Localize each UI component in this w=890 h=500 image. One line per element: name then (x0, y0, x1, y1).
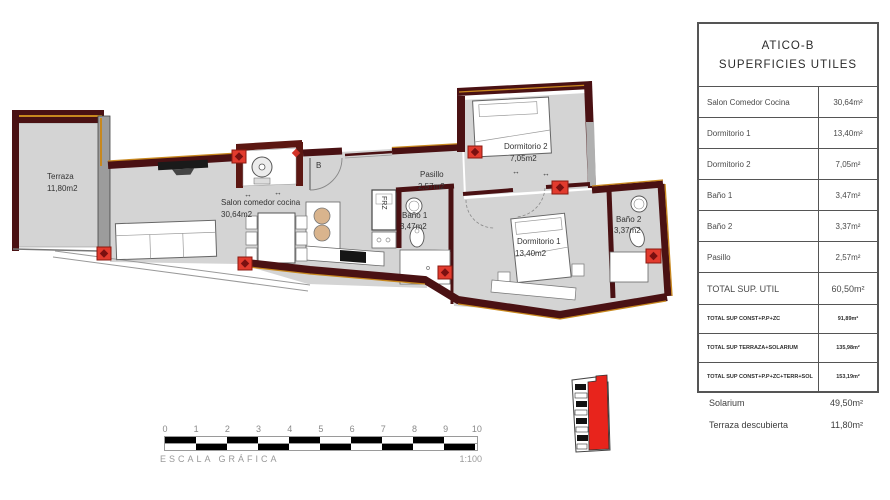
pasillo-name: Pasillo (420, 170, 444, 179)
salon-area: 30,64m2 (221, 210, 253, 219)
fridge-label: FRZ (380, 196, 387, 210)
pillar-icon (238, 257, 252, 270)
pillar-icon (438, 266, 452, 279)
table-title: SUPERFICIES UTILES (719, 59, 857, 71)
slider-arrow-icon: ↔ (274, 188, 282, 197)
unit-title: ATICO-B (762, 40, 815, 52)
table-row: Pasillo2,57m² (699, 241, 877, 272)
terrace-sliding-door (98, 116, 110, 256)
dormitorio1-area: 13,40m2 (515, 249, 547, 258)
pillar-icon (468, 146, 482, 158)
fridge: FRZ (372, 190, 396, 248)
table-row-total: TOTAL SUP. UTIL60,50m² (699, 272, 877, 304)
table-row: Salon Comedor Cocina30,64m² (699, 86, 877, 117)
table-row: Dormitorio 113,40m² (699, 117, 877, 148)
table-header: ATICO-B SUPERFICIES UTILES (699, 24, 877, 86)
bano1-area: 3,47m2 (400, 222, 427, 231)
closet-arrow-icon: ↔ (542, 169, 550, 178)
sofa (115, 220, 216, 259)
pillar-icon (646, 249, 661, 263)
pasillo-area: 2,57m2 (418, 182, 445, 191)
table-row: Dormitorio 27,05m² (699, 148, 877, 179)
table-row-terraza-solarium: TOTAL SUP TERRAZA+SOLARIUM135,98m² (699, 333, 877, 362)
floor-plan: ↔ ↔ B ↔ ↔ (0, 0, 690, 350)
pillar-icon (552, 181, 568, 194)
bano2-name: Baño 2 (616, 215, 642, 224)
dormitorio2-name: Dormitorio 2 (504, 142, 548, 151)
closet-arrow-icon: ↔ (512, 167, 520, 176)
unit-highlight (588, 375, 609, 450)
floor-areas (16, 93, 668, 313)
scale-ticks: 01 23 45 67 89 10 (160, 424, 482, 434)
terraza-name: Terraza (47, 172, 74, 181)
dormitorio1-bed (511, 213, 571, 282)
table-row: Baño 13,47m² (699, 179, 877, 210)
floorplan-sheet: ↔ ↔ B ↔ ↔ (0, 0, 890, 500)
scale-bar-segments (164, 436, 478, 451)
bano2-area: 3,37m2 (614, 226, 641, 235)
surfaces-table: ATICO-B SUPERFICIES UTILES Salon Comedor… (697, 22, 879, 393)
door-b-label: B (316, 161, 321, 170)
terraza-area: 11,80m2 (47, 184, 78, 193)
table-row-const: TOTAL SUP CONST+P.P+ZC91,89m² (699, 304, 877, 333)
key-plan (566, 372, 616, 456)
salon-name: Salon comedor cocina (221, 198, 301, 207)
scale-bar: 01 23 45 67 89 10 ESCALA GRÁFICA 1:100 (160, 424, 482, 464)
solarium-row: Solarium 49,50m² (697, 398, 875, 408)
table-row: Baño 23,37m² (699, 210, 877, 241)
pillar-icon (97, 247, 111, 260)
dormitorio1-name: Dormitorio 1 (517, 237, 561, 246)
terraza-descubierta-row: Terraza descubierta 11,80m² (697, 420, 875, 430)
bano1-name: Baño 1 (402, 211, 428, 220)
table-row-grand-total: TOTAL SUP CONST+P.P+ZC+TERR+SOL153,19m² (699, 362, 877, 391)
scale-caption: ESCALA GRÁFICA (160, 454, 280, 464)
dormitorio2-area: 7,05m2 (510, 154, 537, 163)
scale-ratio: 1:100 (459, 454, 482, 464)
dining-table (246, 213, 307, 263)
pillar-icon (232, 150, 246, 163)
